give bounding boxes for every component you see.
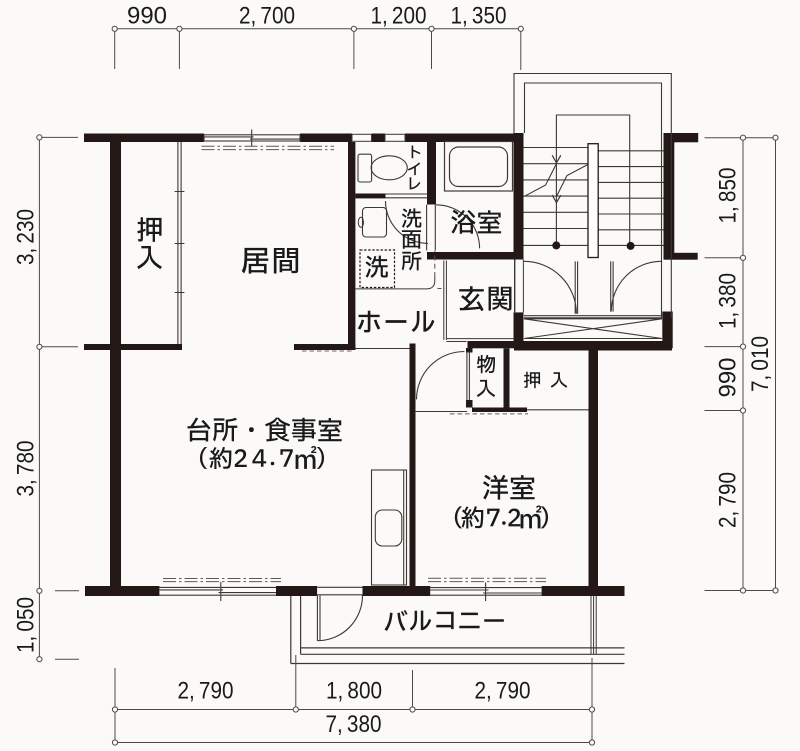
svg-text:990: 990 [715, 358, 742, 398]
svg-text:990: 990 [127, 3, 167, 30]
svg-text:7, 380: 7, 380 [326, 711, 382, 738]
svg-text:1, 800: 1, 800 [326, 678, 382, 705]
svg-text:2, 790: 2, 790 [178, 678, 234, 705]
svg-text:1, 050: 1, 050 [13, 597, 40, 653]
svg-text:1, 380: 1, 380 [715, 273, 742, 329]
svg-text:3, 230: 3, 230 [13, 209, 40, 265]
svg-text:3, 780: 3, 780 [13, 441, 40, 497]
svg-text:7, 010: 7, 010 [747, 336, 774, 392]
svg-text:1, 200: 1, 200 [371, 3, 427, 30]
svg-text:1, 350: 1, 350 [451, 3, 507, 30]
svg-text:2, 790: 2, 790 [715, 472, 742, 528]
svg-text:1, 850: 1, 850 [715, 168, 742, 224]
svg-text:2, 790: 2, 790 [475, 678, 531, 705]
svg-text:2, 700: 2, 700 [239, 3, 295, 30]
